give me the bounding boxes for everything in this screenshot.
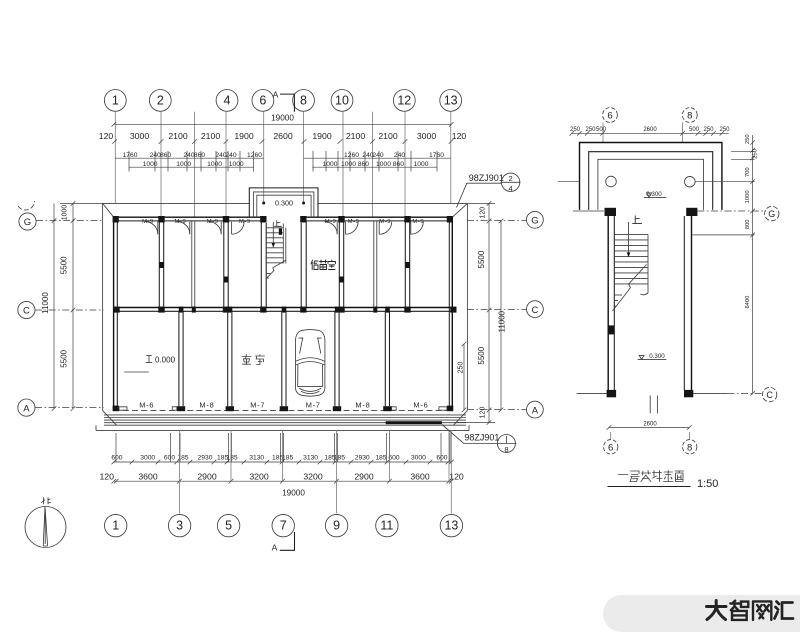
svg-text:19000: 19000 (271, 113, 294, 122)
svg-text:7: 7 (280, 518, 287, 532)
svg-text:120: 120 (99, 131, 114, 141)
svg-text:M-9: M-9 (142, 219, 154, 225)
svg-text:700: 700 (745, 167, 751, 177)
svg-text:2100: 2100 (201, 131, 220, 141)
svg-text:1900: 1900 (234, 131, 253, 141)
svg-text:3600: 3600 (138, 471, 157, 481)
svg-text:98ZJ901: 98ZJ901 (464, 432, 499, 442)
svg-text:185: 185 (334, 455, 345, 462)
svg-text:6: 6 (607, 111, 612, 122)
svg-text:250: 250 (570, 127, 581, 133)
svg-text:M-7: M-7 (250, 401, 265, 410)
svg-text:A: A (23, 403, 30, 414)
svg-text:3: 3 (176, 518, 183, 532)
svg-text:2100: 2100 (168, 131, 187, 141)
svg-text:13: 13 (444, 518, 458, 532)
svg-text:3000: 3000 (130, 131, 149, 141)
svg-text:1000: 1000 (143, 161, 158, 168)
svg-text:860: 860 (160, 152, 171, 159)
svg-text:C: C (23, 306, 30, 317)
svg-text:12: 12 (397, 94, 411, 108)
svg-text:A: A (272, 543, 278, 553)
svg-text:M-9: M-9 (175, 219, 187, 225)
svg-text:0.000: 0.000 (155, 355, 176, 364)
svg-text:1260: 1260 (247, 152, 262, 159)
svg-text:6: 6 (608, 442, 613, 453)
svg-text:0.300: 0.300 (646, 191, 662, 198)
svg-text:13: 13 (444, 94, 458, 108)
svg-text:M-9: M-9 (239, 219, 251, 225)
svg-text:600: 600 (388, 455, 399, 462)
svg-text:5500: 5500 (477, 346, 486, 364)
svg-text:2600: 2600 (643, 422, 657, 428)
svg-text:1: 1 (112, 518, 119, 532)
svg-text:11000: 11000 (498, 310, 507, 332)
svg-text:1:50: 1:50 (697, 478, 718, 490)
svg-text:5500: 5500 (477, 250, 486, 268)
svg-text:8: 8 (687, 111, 692, 122)
svg-text:250: 250 (458, 362, 465, 374)
svg-text:1260: 1260 (344, 152, 359, 159)
svg-text:2900: 2900 (354, 471, 373, 481)
svg-text:19000: 19000 (282, 488, 305, 497)
svg-text:M-6: M-6 (139, 401, 154, 410)
svg-text:M-9: M-9 (348, 219, 360, 225)
svg-text:1000: 1000 (745, 190, 751, 203)
svg-text:250: 250 (703, 127, 714, 133)
svg-text:600: 600 (164, 455, 175, 462)
svg-text:120: 120 (480, 407, 487, 419)
svg-text:8: 8 (687, 442, 692, 453)
svg-text:1900: 1900 (312, 131, 331, 141)
svg-text:800: 800 (745, 219, 751, 229)
svg-text:2100: 2100 (346, 131, 365, 141)
svg-text:11000: 11000 (41, 292, 50, 314)
svg-text:500: 500 (596, 127, 607, 133)
svg-text:3000: 3000 (411, 455, 426, 462)
svg-text:M-7: M-7 (306, 401, 321, 410)
svg-text:250: 250 (745, 134, 751, 144)
svg-text:3130: 3130 (249, 455, 264, 462)
svg-text:1000: 1000 (62, 205, 69, 221)
svg-text:A: A (532, 405, 539, 416)
svg-text:2: 2 (157, 94, 164, 108)
svg-text:240: 240 (225, 152, 236, 159)
svg-text:2930: 2930 (355, 455, 370, 462)
svg-text:3200: 3200 (303, 471, 322, 481)
svg-text:250: 250 (753, 149, 759, 159)
svg-text:4: 4 (509, 184, 513, 193)
svg-text:8: 8 (504, 445, 508, 454)
svg-text:11: 11 (380, 518, 393, 532)
svg-text:1: 1 (112, 94, 119, 108)
svg-text:120: 120 (452, 131, 467, 141)
svg-text:G: G (768, 209, 775, 219)
svg-text:G: G (24, 217, 31, 228)
svg-text:2930: 2930 (198, 455, 213, 462)
svg-text:M-9: M-9 (325, 219, 337, 225)
svg-text:3600: 3600 (410, 471, 429, 481)
svg-text:M-9: M-9 (379, 219, 391, 225)
svg-text:240: 240 (372, 152, 383, 159)
svg-text:860: 860 (194, 152, 205, 159)
svg-text:2600: 2600 (273, 131, 292, 141)
svg-text:C: C (766, 390, 773, 400)
svg-text:1000: 1000 (229, 161, 244, 168)
svg-text:0.300: 0.300 (649, 353, 665, 360)
svg-text:600: 600 (436, 455, 447, 462)
svg-text:5500: 5500 (60, 256, 69, 274)
svg-text:500: 500 (689, 127, 700, 133)
svg-text:A: A (273, 90, 279, 100)
svg-text:1760: 1760 (429, 152, 444, 159)
svg-text:1000 860: 1000 860 (376, 161, 404, 168)
svg-text:M-9: M-9 (207, 219, 219, 225)
svg-text:5: 5 (225, 518, 232, 532)
svg-text:5500: 5500 (60, 349, 69, 367)
svg-text:2600: 2600 (643, 127, 657, 133)
svg-text:2900: 2900 (197, 471, 216, 481)
svg-text:250: 250 (585, 127, 596, 133)
svg-text:8: 8 (300, 94, 307, 108)
svg-text:6400: 6400 (745, 296, 751, 309)
svg-text:185: 185 (375, 455, 386, 462)
svg-text:0.300: 0.300 (275, 199, 293, 208)
svg-text:6: 6 (259, 94, 266, 108)
svg-text:1000: 1000 (207, 161, 222, 168)
svg-text:600: 600 (111, 455, 122, 462)
svg-text:C: C (531, 305, 538, 316)
svg-text:10: 10 (335, 94, 349, 108)
svg-text:M-8: M-8 (199, 401, 214, 410)
svg-text:M-9: M-9 (412, 219, 424, 225)
svg-text:1000: 1000 (323, 161, 338, 168)
svg-text:98ZJ901: 98ZJ901 (469, 173, 504, 183)
svg-text:240: 240 (394, 152, 405, 159)
svg-text:4: 4 (224, 94, 231, 108)
svg-text:3000: 3000 (140, 455, 155, 462)
svg-text:1760: 1760 (123, 152, 138, 159)
svg-text:2100: 2100 (378, 131, 397, 141)
svg-text:2: 2 (509, 174, 513, 183)
svg-text:120: 120 (99, 471, 114, 481)
svg-text:1000: 1000 (176, 161, 191, 168)
svg-text:3000: 3000 (417, 131, 436, 141)
svg-text:M-6: M-6 (413, 401, 428, 410)
svg-text:G: G (531, 216, 538, 227)
svg-text:3200: 3200 (249, 471, 268, 481)
svg-text:120: 120 (480, 207, 487, 219)
svg-text:1000: 1000 (414, 161, 429, 168)
svg-text:3130: 3130 (303, 455, 318, 462)
svg-text:M-8: M-8 (355, 401, 370, 410)
svg-text:9: 9 (333, 518, 340, 532)
svg-text:250: 250 (719, 127, 730, 133)
